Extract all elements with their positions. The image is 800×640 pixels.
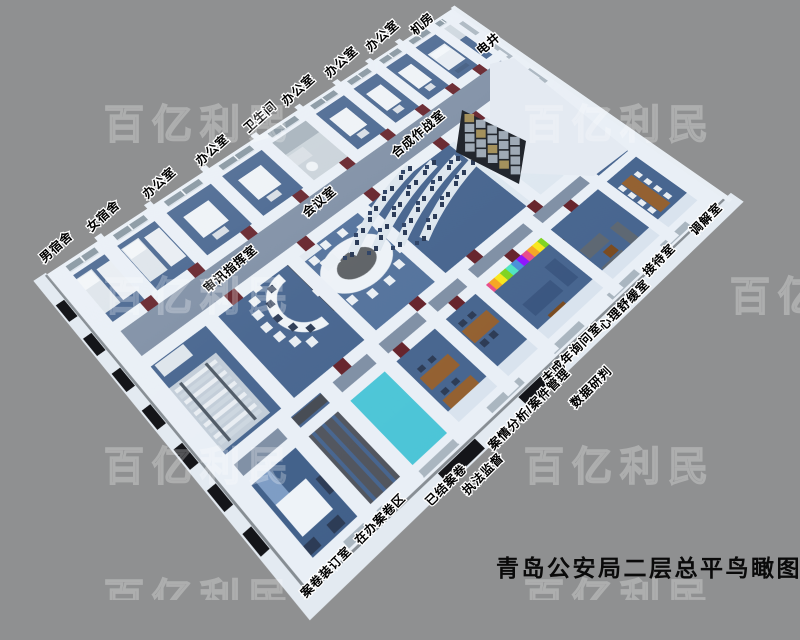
svg-text:会议室: 会议室 <box>299 183 339 220</box>
svg-text:办公室: 办公室 <box>321 43 360 80</box>
svg-text:数据研判: 数据研判 <box>567 363 615 411</box>
svg-text:男宿舍: 男宿舍 <box>36 228 75 265</box>
svg-text:青岛公安局二层总平鸟瞰图: 青岛公安局二层总平鸟瞰图 <box>496 555 800 581</box>
svg-text:办公室: 办公室 <box>139 164 178 201</box>
svg-text:百亿利民: 百亿利民 <box>104 275 296 319</box>
svg-text:接待室: 接待室 <box>640 241 678 279</box>
svg-text:百亿利民: 百亿利民 <box>730 275 800 319</box>
svg-text:调解室: 调解室 <box>687 200 725 238</box>
svg-text:百亿利民: 百亿利民 <box>524 103 716 147</box>
svg-text:百亿利民: 百亿利民 <box>104 577 296 600</box>
svg-text:机房: 机房 <box>407 9 437 38</box>
svg-text:百亿利民: 百亿利民 <box>524 445 716 489</box>
svg-text:百亿利民: 百亿利民 <box>104 445 296 489</box>
svg-text:案情分析/案件管理: 案情分析/案件管理 <box>484 365 572 453</box>
svg-text:心理舒缓室: 心理舒缓室 <box>595 276 652 333</box>
svg-text:案卷装订室: 案卷装订室 <box>297 543 355 600</box>
svg-text:在办案卷区: 在办案卷区 <box>351 490 408 547</box>
svg-text:合成作战室: 合成作战室 <box>388 107 448 161</box>
svg-text:百亿利民: 百亿利民 <box>104 103 296 147</box>
svg-text:办公室: 办公室 <box>362 17 401 54</box>
svg-text:电井: 电井 <box>473 29 503 57</box>
svg-text:女宿舍: 女宿舍 <box>83 197 122 234</box>
